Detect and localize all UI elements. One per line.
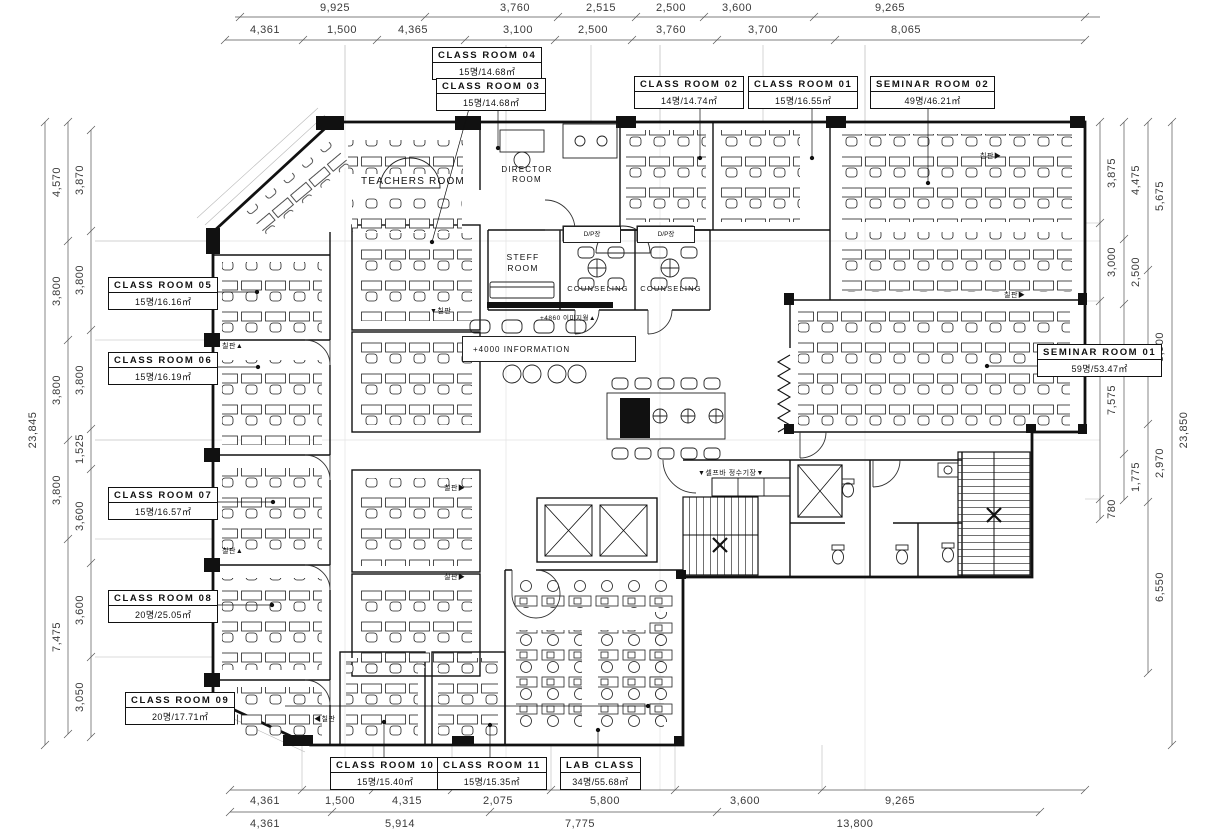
dim-label: 2,515 xyxy=(583,2,619,14)
dim-label: 1,775 xyxy=(1130,459,1142,495)
room-label-lab-class: LAB CLASS 34명/55.68㎡ xyxy=(560,757,641,790)
room-capacity: 59명/53.47㎡ xyxy=(1038,360,1161,376)
blackboard-marker: 칠판▶ xyxy=(444,572,465,582)
dim-label: 7,775 xyxy=(562,818,598,830)
steff-room-label: STEFF ROOM xyxy=(498,252,548,273)
room-label-classroom-08: CLASS ROOM 08 20명/25.05㎡ xyxy=(108,590,218,623)
room-label-classroom-02: CLASS ROOM 02 14명/14.74㎡ xyxy=(634,76,744,109)
room-name: CLASS ROOM 05 xyxy=(109,278,217,293)
room-capacity: 20명/25.05㎡ xyxy=(109,606,217,622)
room-capacity: 15명/16.19㎡ xyxy=(109,368,217,384)
dim-label: 2,500 xyxy=(575,24,611,36)
dim-label: 5,914 xyxy=(382,818,418,830)
room-label-classroom-05: CLASS ROOM 05 15명/16.16㎡ xyxy=(108,277,218,310)
dim-label: 4,361 xyxy=(247,795,283,807)
blackboard-marker: 칠판▲ xyxy=(222,341,243,351)
dim-label: 3,760 xyxy=(497,2,533,14)
image-wall-note: +4860 이미지월▲ xyxy=(540,312,596,322)
dim-label: 6,550 xyxy=(1154,569,1166,605)
dim-label: 5,675 xyxy=(1154,178,1166,214)
dim-label: 2,500 xyxy=(653,2,689,14)
room-label-seminar-02: SEMINAR ROOM 02 49명/46.21㎡ xyxy=(870,76,995,109)
teachers-room-label: TEACHERS ROOM xyxy=(348,176,478,189)
blackboard-marker: 칠판▶ xyxy=(444,483,465,493)
dim-label: 3,800 xyxy=(51,372,63,408)
dim-label: 3,050 xyxy=(74,679,86,715)
dim-label: 4,361 xyxy=(247,24,283,36)
room-capacity: 15명/15.40㎡ xyxy=(331,773,439,789)
room-capacity: 34명/55.68㎡ xyxy=(561,773,640,789)
dim-label: 4,315 xyxy=(389,795,425,807)
counseling-room-label: COUNSELING xyxy=(562,284,634,293)
room-label-classroom-06: CLASS ROOM 06 15명/16.19㎡ xyxy=(108,352,218,385)
dim-label: 4,361 xyxy=(247,818,283,830)
room-name: CLASS ROOM 02 xyxy=(635,77,743,92)
room-label-classroom-04: CLASS ROOM 04 15명/14.68㎡ xyxy=(432,47,542,80)
dim-label: 9,925 xyxy=(317,2,353,14)
dim-label: 1,500 xyxy=(322,795,358,807)
room-capacity: 14명/14.74㎡ xyxy=(635,92,743,108)
dim-label: 3,875 xyxy=(1106,155,1118,191)
dim-label: 3,760 xyxy=(653,24,689,36)
room-name: CLASS ROOM 07 xyxy=(109,488,217,503)
self-bar-note: ▼셀프바 정수기장▼ xyxy=(698,468,764,478)
dim-label: 3,100 xyxy=(500,24,536,36)
dim-label: 2,500 xyxy=(1130,254,1142,290)
director-room-label: DIRECTOR ROOM xyxy=(496,165,558,185)
dim-label: 3,700 xyxy=(745,24,781,36)
dim-label: 1,525 xyxy=(74,431,86,467)
dim-label: 9,265 xyxy=(882,795,918,807)
dim-label: 3,800 xyxy=(51,472,63,508)
dim-label: 9,265 xyxy=(872,2,908,14)
dp-closet-label: D/P장 xyxy=(637,226,695,243)
blackboard-marker: ◀칠판 xyxy=(314,714,335,724)
room-name: LAB CLASS xyxy=(561,758,640,773)
dim-label: 2,075 xyxy=(480,795,516,807)
room-capacity: 15명/16.57㎡ xyxy=(109,503,217,519)
room-name: SEMINAR ROOM 02 xyxy=(871,77,994,92)
room-name: CLASS ROOM 10 xyxy=(331,758,439,773)
counseling-room-label: COUNSELING xyxy=(635,284,707,293)
room-name: CLASS ROOM 03 xyxy=(437,79,545,94)
dim-label: 4,475 xyxy=(1130,162,1142,198)
room-label-classroom-09: CLASS ROOM 09 20명/17.71㎡ xyxy=(125,692,235,725)
room-capacity: 20명/17.71㎡ xyxy=(126,708,234,724)
dim-label: 3,000 xyxy=(1106,244,1118,280)
dim-label: 3,600 xyxy=(74,498,86,534)
dim-label: 1,500 xyxy=(324,24,360,36)
room-name: CLASS ROOM 08 xyxy=(109,591,217,606)
dim-label: 3,800 xyxy=(74,362,86,398)
room-name: CLASS ROOM 06 xyxy=(109,353,217,368)
information-desk-label: +4000 INFORMATION xyxy=(462,336,636,362)
room-capacity: 15명/14.68㎡ xyxy=(433,63,541,79)
blackboard-marker: 칠판▲ xyxy=(222,546,243,556)
dim-label: 3,800 xyxy=(74,262,86,298)
dim-label: 4,570 xyxy=(51,164,63,200)
dim-label: 780 xyxy=(1106,496,1118,522)
dim-label: 2,970 xyxy=(1154,445,1166,481)
blackboard-marker: ▼칠판 xyxy=(430,306,451,316)
dim-label: 7,575 xyxy=(1106,382,1118,418)
floorplan-sheet: CLASS ROOM 04 15명/14.68㎡ CLASS ROOM 03 1… xyxy=(0,0,1210,835)
shaft-x-marks xyxy=(545,465,1001,556)
dim-label: 5,800 xyxy=(587,795,623,807)
dim-label: 3,600 xyxy=(719,2,755,14)
dim-label: 3,600 xyxy=(74,592,86,628)
dim-label: 3,600 xyxy=(727,795,763,807)
dim-label: 23,850 xyxy=(1178,409,1190,452)
dim-label: 13,800 xyxy=(834,818,877,830)
room-capacity: 15명/14.68㎡ xyxy=(437,94,545,110)
dim-label: 3,800 xyxy=(51,273,63,309)
room-name: CLASS ROOM 09 xyxy=(126,693,234,708)
dim-label: 4,365 xyxy=(395,24,431,36)
room-label-seminar-01: SEMINAR ROOM 01 59명/53.47㎡ xyxy=(1037,344,1162,377)
dim-label: 8,065 xyxy=(888,24,924,36)
room-name: CLASS ROOM 04 xyxy=(433,48,541,63)
room-name: CLASS ROOM 11 xyxy=(438,758,546,773)
room-capacity: 15명/16.16㎡ xyxy=(109,293,217,309)
dp-closet-label: D/P장 xyxy=(563,226,621,243)
room-label-classroom-01: CLASS ROOM 01 15명/16.55㎡ xyxy=(748,76,858,109)
dim-label: 23,845 xyxy=(27,409,39,452)
blackboard-marker: 칠판▶ xyxy=(1004,290,1025,300)
dim-label: 7,475 xyxy=(51,619,63,655)
room-capacity: 15명/16.55㎡ xyxy=(749,92,857,108)
room-label-classroom-10: CLASS ROOM 10 15명/15.40㎡ xyxy=(330,757,440,790)
room-name: SEMINAR ROOM 01 xyxy=(1038,345,1161,360)
room-label-classroom-11: CLASS ROOM 11 15명/15.35㎡ xyxy=(437,757,547,790)
room-label-classroom-07: CLASS ROOM 07 15명/16.57㎡ xyxy=(108,487,218,520)
room-label-classroom-03: CLASS ROOM 03 15명/14.68㎡ xyxy=(436,78,546,111)
room-capacity: 49명/46.21㎡ xyxy=(871,92,994,108)
room-capacity: 15명/15.35㎡ xyxy=(438,773,546,789)
room-name: CLASS ROOM 01 xyxy=(749,77,857,92)
dim-label: 3,870 xyxy=(74,162,86,198)
blackboard-marker: 칠판▶ xyxy=(980,151,1001,161)
